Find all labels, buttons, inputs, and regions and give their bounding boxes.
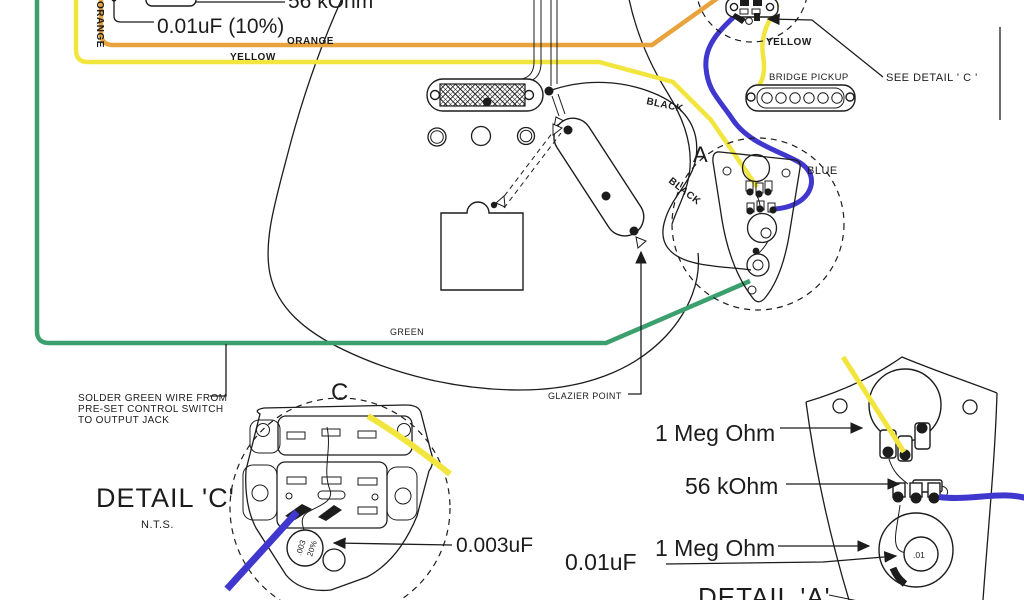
rhythm-resistor-value: 56 kOhm <box>288 0 373 13</box>
pickup-solder-dot <box>483 98 491 106</box>
detail-a: .01 <box>806 357 1024 600</box>
preset-switch <box>696 0 808 42</box>
detail-a-blue-wire <box>939 495 1024 498</box>
bridge-pickup-label: BRIDGE PICKUP <box>769 72 849 83</box>
solder-junction-dot <box>545 87 554 96</box>
resistor-symbol <box>146 0 196 6</box>
detail-c-plate <box>246 405 433 590</box>
detail-a-plate-left <box>806 402 849 600</box>
orange-wire-label: ORANGE <box>287 36 334 47</box>
orange-wire-label-vertical: ORANGE <box>94 1 105 48</box>
cap-003-label: 0.003uF <box>456 534 533 557</box>
bridge <box>547 111 651 248</box>
tremolo-plate <box>441 124 562 290</box>
solder-note-line1: SOLDER GREEN WIRE FROM <box>78 393 227 404</box>
wiring-diagram: 56 kOhm 0.01uF (10%) ORANGE ORANGE YELLO… <box>0 0 1024 600</box>
volume-pot <box>748 214 777 243</box>
pot-top-label: 1 Meg Ohm <box>655 420 775 446</box>
see-detail-c-label: SEE DETAIL ' C ' <box>886 72 978 84</box>
detail-a-cap-marking: .01 <box>913 550 925 560</box>
green-wire <box>37 0 750 343</box>
pot-bottom-label: 1 Meg Ohm <box>655 535 775 561</box>
detail-c-title: DETAIL 'C' <box>96 483 235 513</box>
switch-lever-2 <box>318 505 342 521</box>
green-wire-label: GREEN <box>390 327 424 337</box>
black-wire-label-1: BLACK <box>645 96 684 115</box>
yellow-wire-label: YELLOW <box>230 52 276 63</box>
see-detail-c-leader <box>768 19 883 77</box>
pickup-coil-hatch <box>440 84 525 106</box>
detail-c: C .003 20% <box>227 379 450 600</box>
rhythm-cap-value: 0.01uF (10%) <box>157 15 284 38</box>
detail-c-yellow-wire <box>368 416 450 474</box>
detail-c-marker: C <box>331 379 348 406</box>
glazier-point-label: GLAZIER POINT <box>548 391 622 401</box>
output-jack <box>747 254 769 276</box>
marker-a-label: A <box>693 142 708 167</box>
detail-a-title: DETAIL 'A' <box>698 582 831 600</box>
resistor-label: 56 kOhm <box>685 473 778 499</box>
solder-note: SOLDER GREEN WIRE FROM PRE-SET CONTROL S… <box>78 344 227 426</box>
cap-01-label: 0.01uF <box>565 549 637 575</box>
neck-pickup <box>427 79 543 111</box>
glazier-point-callout: GLAZIER POINT <box>548 252 641 401</box>
body-holes <box>428 127 535 147</box>
black-wire-label-2: BLACK <box>666 176 703 208</box>
yellow-wire-label-right: YELLOW <box>766 37 812 48</box>
detail-c-scale: N.T.S. <box>141 519 174 531</box>
solder-note-line2: PRE-SET CONTROL SWITCH <box>78 404 223 415</box>
diagram-canvas: 56 kOhm 0.01uF (10%) ORANGE ORANGE YELLO… <box>0 0 1024 600</box>
bridge-arrow <box>636 237 646 248</box>
control-plate-on-body: A <box>672 138 844 310</box>
cap-003-leader <box>334 543 452 545</box>
solder-note-line3: TO OUTPUT JACK <box>78 415 169 426</box>
